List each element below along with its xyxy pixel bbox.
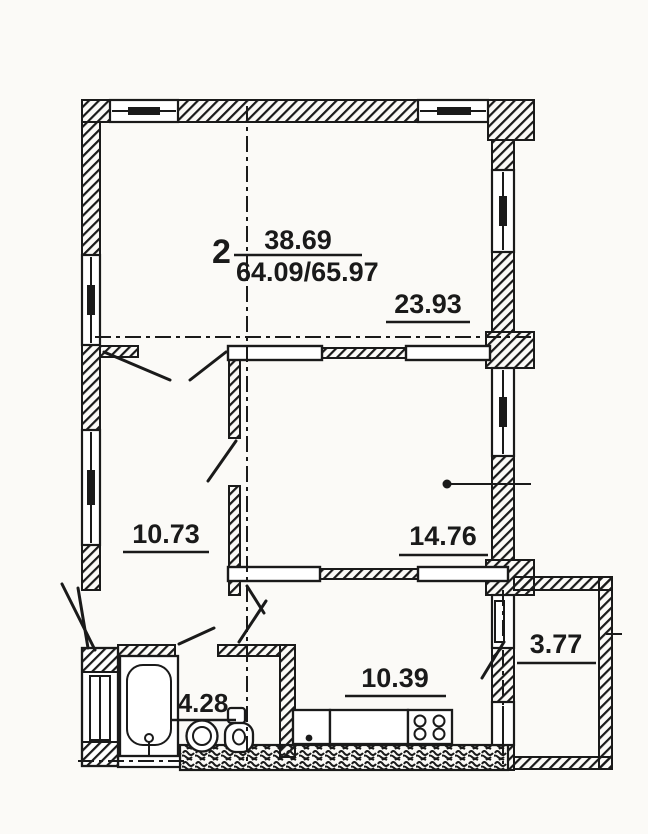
toilet-icon xyxy=(225,708,253,752)
room-label-kitchen: 10.39 xyxy=(361,663,429,693)
window-left-upper xyxy=(82,255,100,345)
window-right-lower xyxy=(492,368,514,456)
partition-vertical-upper xyxy=(229,360,240,438)
door-leaf-hall xyxy=(239,601,266,642)
balcony-wall-top xyxy=(514,577,612,590)
lintel-living-right xyxy=(406,346,490,360)
lintel-kitchen-left xyxy=(228,567,320,581)
lintel-living-left xyxy=(228,346,322,360)
bathroom-wall-top-right xyxy=(218,645,280,656)
partition-kitchen-mid xyxy=(320,569,418,579)
kitchen-sink-icon xyxy=(293,710,330,744)
ventilation-shaft xyxy=(82,648,118,766)
labels: 2 38.69 64.09/65.97 23.93 10.73 14.76 10… xyxy=(123,225,596,720)
wall-left-middle xyxy=(82,345,100,430)
wall-left-lower xyxy=(82,545,100,590)
door-leaf-living-right xyxy=(190,352,226,380)
door-leaf-bathroom xyxy=(179,628,214,644)
bathroom-wall-top-left xyxy=(118,645,175,656)
window-top-right xyxy=(418,100,488,122)
total-area-label: 64.09/65.97 xyxy=(236,257,379,287)
wall-top-corner-right xyxy=(488,100,534,140)
door-swings xyxy=(62,352,504,678)
partition-vertical-lower xyxy=(229,486,240,567)
wall-right-1 xyxy=(492,140,514,170)
washbasin-icon xyxy=(187,721,218,752)
wall-right-3 xyxy=(492,456,514,560)
wall-top-middle xyxy=(178,100,418,122)
window-left-lower xyxy=(82,430,100,545)
balcony-wall-bottom xyxy=(514,757,612,769)
room-label-living: 23.93 xyxy=(394,289,462,319)
reference-marker xyxy=(443,480,532,489)
lintel-kitchen-right xyxy=(418,567,508,581)
room-label-bathroom: 4.28 xyxy=(178,688,229,718)
room-label-side: 10.73 xyxy=(132,519,200,549)
wall-left-upper xyxy=(82,122,100,255)
partition-living-mid xyxy=(322,348,406,358)
floor-plan: 2 38.69 64.09/65.97 23.93 10.73 14.76 10… xyxy=(0,0,648,834)
door-leaf-bedroom xyxy=(208,441,236,481)
kitchen-counter xyxy=(330,710,408,744)
wall-right-2 xyxy=(492,252,514,332)
living-area-label: 38.69 xyxy=(264,225,332,255)
room-label-bedroom: 14.76 xyxy=(409,521,477,551)
wall-top-corner-left xyxy=(82,100,110,122)
window-top-left xyxy=(110,100,178,122)
window-right-upper xyxy=(492,170,514,252)
stove-4-burner-icon xyxy=(408,710,452,744)
floor-plan-drawing: 2 38.69 64.09/65.97 23.93 10.73 14.76 10… xyxy=(0,0,648,834)
balcony-walls xyxy=(514,577,622,769)
room-label-balcony: 3.77 xyxy=(530,629,583,659)
balcony-wall-right xyxy=(599,577,612,769)
bathtub-icon xyxy=(120,656,178,756)
partition-vertical-stub xyxy=(229,581,240,595)
apartment-number-label: 2 xyxy=(212,233,231,271)
